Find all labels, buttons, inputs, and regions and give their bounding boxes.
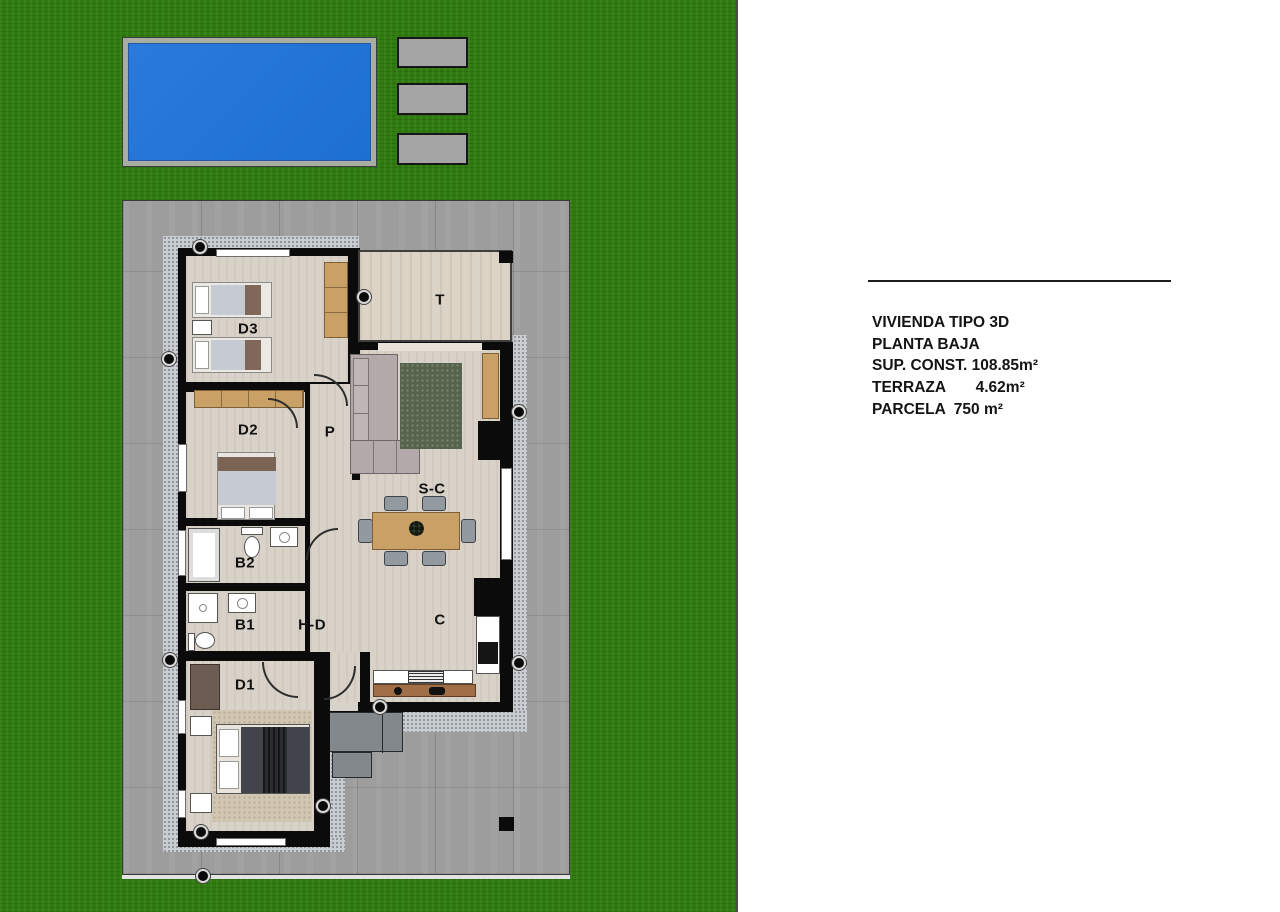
window <box>178 700 186 734</box>
blanket-fold <box>263 727 287 793</box>
survey-marker <box>318 801 328 811</box>
parking-pad <box>397 37 468 68</box>
toilet-tank <box>241 527 263 535</box>
survey-marker <box>164 354 174 364</box>
bed-blanket <box>245 340 261 370</box>
parking-pad <box>397 83 468 115</box>
site-plan-canvas: D3 D2 P T S-C B2 B1 H-D C D1 VIVIENDA TI… <box>0 0 1280 912</box>
pool-water <box>128 43 371 161</box>
mattress <box>218 471 276 505</box>
dining-chair <box>358 519 373 543</box>
kitchen-rack <box>408 671 444 683</box>
dresser <box>190 664 220 710</box>
info-divider <box>868 280 1171 282</box>
room-label-hd: H-D <box>298 617 326 634</box>
survey-marker <box>196 827 206 837</box>
window <box>178 444 187 492</box>
survey-marker <box>165 655 175 665</box>
double-bed <box>216 724 310 794</box>
mattress <box>211 285 245 315</box>
shower-drain <box>199 604 207 612</box>
pillow <box>221 507 245 519</box>
toilet-tank <box>188 633 195 651</box>
bed-blanket <box>245 285 261 315</box>
sink <box>228 593 256 613</box>
room-label-d3: D3 <box>238 321 258 338</box>
room-label-sc: S-C <box>418 481 445 498</box>
cooktop <box>478 642 498 664</box>
kitchen-tall-unit <box>474 578 500 616</box>
info-terrace-area: TERRAZA 4.62m² <box>872 377 1202 399</box>
pillow <box>195 341 209 369</box>
tv-wall-unit <box>478 421 500 460</box>
entry-door-opening <box>330 702 358 711</box>
wall-stub-kitchen <box>360 652 370 702</box>
dining-chair <box>461 519 476 543</box>
window <box>216 249 290 257</box>
survey-marker <box>195 242 205 252</box>
dining-chair <box>422 551 446 566</box>
pillow <box>219 729 239 757</box>
terrace-slider-opening <box>378 343 482 351</box>
info-floor: PLANTA BAJA <box>872 334 1202 356</box>
dining-chair <box>384 496 408 511</box>
window <box>178 530 186 576</box>
room-label-d1: D1 <box>235 677 255 694</box>
nightstand <box>192 320 212 335</box>
info-panel: VIVIENDA TIPO 3D PLANTA BAJA SUP. CONST.… <box>872 312 1202 421</box>
sidewalk <box>163 236 178 852</box>
entry-step-lower <box>332 752 372 778</box>
info-parcel-area: PARCELA 750 m² <box>872 399 1202 421</box>
bed-blanket <box>218 457 276 471</box>
sink-basin <box>237 598 248 609</box>
room-label-t: T <box>435 292 445 309</box>
survey-marker <box>198 871 208 881</box>
bathtub <box>188 528 220 582</box>
step-edge <box>382 713 383 753</box>
table-centerpiece <box>409 521 424 536</box>
mattress <box>211 340 245 370</box>
shower-tray <box>188 593 218 623</box>
swimming-pool <box>122 37 377 167</box>
sidewalk <box>513 335 527 732</box>
plot-marker-square <box>499 817 514 831</box>
kitchen-appliance <box>394 687 402 695</box>
window <box>216 838 286 846</box>
nightstand <box>190 793 212 813</box>
room-label-b1: B1 <box>235 617 255 634</box>
info-title: VIVIENDA TIPO 3D <box>872 312 1202 334</box>
sideboard <box>482 353 499 419</box>
kitchen-island-counter <box>373 684 476 697</box>
single-bed <box>192 282 272 318</box>
survey-marker <box>514 658 524 668</box>
double-bed <box>217 452 275 520</box>
single-bed <box>192 337 272 373</box>
room-label-p: P <box>325 424 335 441</box>
room-label-b2: B2 <box>235 555 255 572</box>
living-rug <box>400 363 462 449</box>
duvet <box>241 727 309 793</box>
room-label-c: C <box>434 612 445 629</box>
window <box>501 468 512 560</box>
pillow <box>249 507 273 519</box>
survey-marker <box>359 292 369 302</box>
pillow <box>219 761 239 789</box>
pillow <box>195 286 209 314</box>
window <box>178 790 186 818</box>
room-label-d2: D2 <box>238 422 258 439</box>
entry-steps <box>318 712 403 752</box>
terrace-pillar <box>499 251 513 263</box>
survey-marker <box>514 407 524 417</box>
dining-chair <box>384 551 408 566</box>
parking-pad <box>397 133 468 165</box>
sink <box>270 527 298 547</box>
toilet <box>195 632 215 649</box>
wardrobe <box>324 262 348 338</box>
kitchen-appliance <box>429 687 445 695</box>
info-built-area: SUP. CONST. 108.85m² <box>872 355 1202 377</box>
sink-basin <box>279 532 290 543</box>
nightstand <box>190 716 212 736</box>
dining-chair <box>422 496 446 511</box>
survey-marker <box>375 702 385 712</box>
